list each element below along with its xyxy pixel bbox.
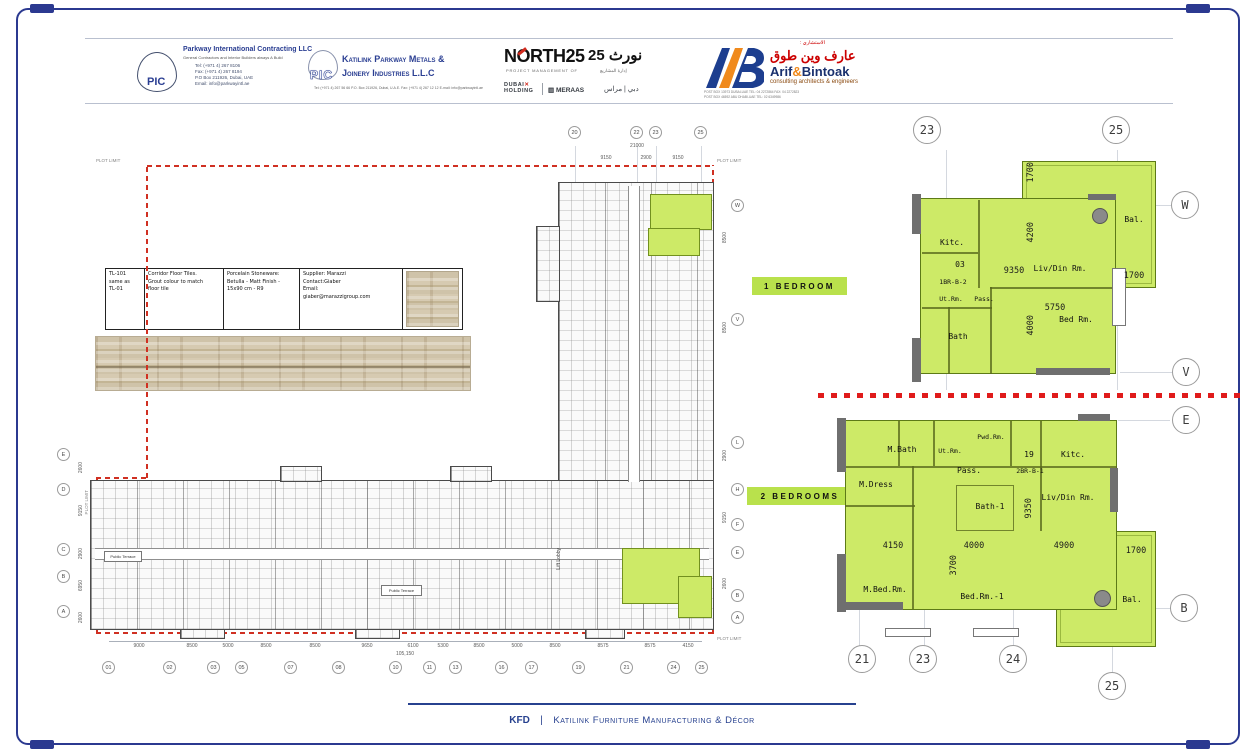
room-label: 03 — [955, 260, 965, 269]
wall-segment — [843, 602, 903, 610]
dim-label: 5300 — [437, 643, 448, 649]
room-label: Liv/Din Rm. — [1042, 493, 1095, 502]
dim-label: 4150 — [883, 541, 903, 551]
meraas-text: MERAAS — [556, 87, 584, 94]
plot-limit-line — [147, 165, 713, 167]
dim-label: 9150 — [672, 155, 683, 161]
grid-bubble: 23 — [913, 116, 941, 144]
dim-label: 2600 — [722, 578, 728, 589]
grid-line — [701, 146, 702, 182]
dim-label: 8500 — [722, 232, 728, 243]
dim-label: 21000 — [630, 143, 644, 149]
grid-bubble: C — [57, 543, 70, 556]
corner-mark — [30, 4, 54, 13]
building-tab — [280, 466, 322, 482]
dim-label: 2900 — [722, 450, 728, 461]
pic-contact-line: Tel: (+971 4) 267 8106 — [195, 63, 240, 68]
arif-address2: POST BOX 46592 ABU DHABI-UAE TEL: 02 634… — [704, 95, 781, 99]
partition-line — [922, 307, 992, 309]
dim-label: 9000 — [133, 643, 144, 649]
plot-limit-label: PLOT LIMIT — [717, 636, 741, 641]
arif-tagline: consulting architects & engineers — [770, 79, 858, 85]
chip-two-bedrooms: 2 BEDROOMS — [747, 487, 853, 505]
partition-line — [845, 505, 915, 507]
north25-logo-arabic: نورث 25 — [588, 46, 642, 64]
unit-highlight-2br — [678, 576, 712, 618]
north25-tagline-arabic: إدارة المشاريع — [600, 68, 627, 74]
door-sill — [973, 628, 1019, 637]
grid-line — [1118, 420, 1170, 421]
grid-bubble: A — [57, 605, 70, 618]
wood-sample-image — [406, 271, 459, 327]
grid-bubble: 25 — [1098, 672, 1126, 700]
dim-label: 8500 — [722, 322, 728, 333]
corner-mark — [1186, 740, 1210, 749]
partition-line — [922, 252, 978, 254]
dim-label: 8575 — [597, 643, 608, 649]
wall-segment — [912, 194, 921, 234]
building-tab — [355, 629, 400, 639]
grid-bubble: E — [57, 448, 70, 461]
room-label: M.Bed.Rm. — [863, 585, 906, 594]
grid-bubble: H — [731, 483, 744, 496]
plot-limit-line — [146, 165, 148, 478]
pic-abbr: PIC — [147, 76, 165, 88]
grid-line — [575, 146, 576, 182]
room-label: Ut.Rm. — [939, 295, 962, 303]
grid-bubble: 25 — [695, 661, 708, 674]
dim-total-label: 105,150 — [396, 651, 414, 657]
spec-desc-cell: Corridor Floor Tiles. Grout colour to ma… — [144, 268, 224, 330]
wall-segment — [1036, 368, 1110, 375]
building-tab — [585, 629, 625, 639]
pic-title: Parkway International Contracting LLC — [183, 46, 312, 53]
partition-line — [898, 421, 900, 466]
wall-segment — [837, 418, 846, 472]
partition-line — [933, 421, 935, 466]
dim-label: 9350 — [1004, 266, 1024, 276]
partition-line — [990, 287, 1116, 289]
grid-bubble: A — [731, 611, 744, 624]
footer-separator: | — [540, 715, 543, 726]
wall-segment — [1088, 194, 1116, 200]
grid-bubble: 24 — [999, 645, 1027, 673]
chip-one-bedroom: 1 BEDROOM — [752, 277, 847, 295]
wall-segment — [912, 338, 921, 382]
dim-label: 6100 — [407, 643, 418, 649]
dim-label: 4150 — [682, 643, 693, 649]
grid-bubble: F — [731, 518, 744, 531]
amp-text: & — [792, 64, 801, 79]
dubai-holding-logo: DUBAI✕ HOLDING — [504, 82, 534, 94]
unit-highlight-1br — [648, 228, 700, 256]
grid-line — [637, 146, 638, 182]
unit-highlight-1br — [650, 194, 712, 230]
grid-bubble: 03 — [207, 661, 220, 674]
building-tab — [180, 629, 225, 639]
grid-bubble: 10 — [389, 661, 402, 674]
company-logo-north25: NORTH25 PROJECT MANAGEMENT OF نورث 25 إد… — [500, 44, 690, 100]
plank-seam — [96, 366, 470, 368]
grid-line — [859, 609, 860, 649]
spec-code-cell: TL-101 same as TL-01 — [105, 268, 145, 330]
company-logo-katilink: PIC Katilink Parkway Metals & Joinery In… — [300, 48, 485, 100]
dim-label: 2900 — [640, 155, 651, 161]
public-terrace-label: Public Terrace — [104, 551, 142, 562]
grid-bubble: B — [57, 570, 70, 583]
corner-mark — [30, 740, 54, 749]
grid-bubble: W — [1171, 191, 1199, 219]
dim-label: 8500 — [186, 643, 197, 649]
grid-bubble: 25 — [1102, 116, 1130, 144]
dim-label: 9150 — [600, 155, 611, 161]
dim-label: 9650 — [361, 643, 372, 649]
door-sill — [885, 628, 931, 637]
arif-name-arabic: عارف وين طوق — [770, 48, 856, 64]
dim-label: 8500 — [549, 643, 560, 649]
partition-line — [978, 200, 980, 288]
brand-divider — [542, 83, 543, 95]
grid-bubble: E — [731, 546, 744, 559]
room-label: 19 — [1024, 450, 1034, 459]
grid-line — [656, 146, 657, 182]
room-label: Bed.Rm.-1 — [960, 592, 1003, 601]
grid-bubble: B — [1170, 594, 1198, 622]
grid-bubble: 23 — [909, 645, 937, 673]
katilink-contact: Tel: (+971 4) 267 56 66 P.O. Box 211926,… — [314, 86, 483, 90]
grid-bubble: 20 — [568, 126, 581, 139]
grid-bubble: V — [1172, 358, 1200, 386]
corner-mark — [1186, 4, 1210, 13]
grid-bubble: D — [57, 483, 70, 496]
pic-contact-line: Email: info@parkwayintl.ae — [195, 81, 249, 86]
partition-line — [1010, 421, 1012, 466]
public-terrace-label: Public Terrace — [381, 585, 422, 596]
holding-text: HOLDING — [504, 88, 534, 94]
wood-strip-image — [95, 336, 471, 391]
footer-title: KFD | Katilink Furniture Manufacturing &… — [408, 710, 856, 728]
katilink-line1: Katilink Parkway Metals & — [342, 54, 445, 64]
grid-bubble: 22 — [630, 126, 643, 139]
grid-bubble: 21 — [620, 661, 633, 674]
grid-bubble: 23 — [649, 126, 662, 139]
room-label: Kitc. — [940, 238, 964, 247]
dim-label: 8500 — [260, 643, 271, 649]
grid-bubble: 17 — [525, 661, 538, 674]
footer-kfd: KFD — [509, 715, 530, 726]
wall-segment — [1110, 468, 1118, 512]
dim-label: 2900 — [78, 548, 84, 559]
spec-material-cell: Porcelain Stoneware: Betulla - Matt Fini… — [223, 268, 300, 330]
room-label: 2BR-B-1 — [1016, 467, 1043, 475]
grid-bubble: 07 — [284, 661, 297, 674]
brands-arabic: دبي | مراس — [604, 85, 639, 93]
red-dotted-divider — [818, 393, 1245, 398]
dim-label: 6950 — [78, 580, 84, 591]
katilink-abbr: PIC — [310, 68, 333, 82]
dim-label: 1700 — [1124, 271, 1144, 281]
bintoak-text: Bintoak — [802, 64, 850, 79]
katilink-line2: Joinery Industries L.L.C — [342, 68, 434, 78]
grid-bubble: L — [731, 436, 744, 449]
room-label: Ut.Rm. — [938, 447, 961, 455]
pic-contact-line: P.O Box 211926, Dubai, UAE — [195, 75, 253, 80]
building-tab — [450, 466, 492, 482]
grid-bubble: 16 — [495, 661, 508, 674]
grid-bubble: 08 — [332, 661, 345, 674]
grid-bubble: 13 — [449, 661, 462, 674]
dim-label: 4200 — [1026, 222, 1036, 242]
arif-consultant-arabic: الاستشاري : — [800, 40, 825, 46]
room-label: Bed Rm. — [1059, 315, 1093, 324]
room-label: Bath — [948, 332, 967, 341]
dim-label: 5000 — [222, 643, 233, 649]
dim-label: 5750 — [1045, 303, 1065, 313]
grid-line — [1112, 647, 1113, 673]
arif-address1: POST BOX 13973 DUBAI-UAE TEL: 04 2272864… — [704, 90, 799, 94]
dim-label: 1700 — [1126, 546, 1146, 556]
lift-lobby-label: Lift Lobby — [556, 548, 562, 570]
grid-bubble: 24 — [667, 661, 680, 674]
ab-monogram-icon — [706, 48, 764, 88]
dim-label: 4000 — [964, 541, 984, 551]
dim-label: 2600 — [78, 462, 84, 473]
column-dot — [1094, 590, 1111, 607]
grid-bubble: 11 — [423, 661, 436, 674]
header-rule-bottom — [85, 103, 1173, 104]
header-rule-top — [85, 38, 1173, 39]
dim-label: 9350 — [1024, 498, 1034, 518]
north25-tagline: PROJECT MANAGEMENT OF — [506, 68, 578, 73]
dim-label: 2600 — [78, 612, 84, 623]
plot-limit-label: PLOT LIMIT — [84, 490, 89, 514]
arif-text: Arif — [770, 64, 792, 79]
room-label: M.Dress — [859, 480, 893, 489]
corridor — [95, 548, 709, 560]
grid-bubble: B — [731, 589, 744, 602]
plot-limit-line — [96, 477, 148, 479]
grid-line — [1120, 372, 1172, 373]
footer-rule — [408, 703, 856, 705]
dim-line — [109, 641, 702, 642]
room-label: Pass. — [957, 466, 981, 475]
grid-bubble: V — [731, 313, 744, 326]
room-label: Bal. — [1124, 215, 1143, 224]
room-label: M.Bath — [888, 445, 917, 454]
plot-limit-label: PLOT LIMIT — [717, 158, 741, 163]
dim-label: 3700 — [949, 555, 959, 575]
spec-supplier-cell: Supplier: Marazzi Contact:Giaber Email: … — [299, 268, 403, 330]
room-label: Liv/Din Rm. — [1034, 264, 1087, 273]
room-label: Pass. — [974, 295, 994, 303]
room-label: Kitc. — [1061, 450, 1085, 459]
room-label: 1BR-B-2 — [939, 278, 966, 286]
corridor — [628, 186, 640, 482]
partition-line — [912, 466, 914, 609]
room-label: Bal. — [1122, 595, 1141, 604]
column-dot — [1092, 208, 1108, 224]
room-label: Pwd.Rm. — [977, 433, 1004, 441]
grid-bubble: 02 — [163, 661, 176, 674]
dim-label: 4900 — [1054, 541, 1074, 551]
dim-label: 9150 — [722, 512, 728, 523]
partition-line — [1040, 421, 1042, 531]
dim-label: 9150 — [78, 505, 84, 516]
dim-label: 1700 — [1026, 162, 1036, 182]
dim-label: 8500 — [473, 643, 484, 649]
dim-label: 5000 — [511, 643, 522, 649]
arif-name: Arif&Bintoak — [770, 64, 849, 79]
dim-label: 8500 — [309, 643, 320, 649]
dim-label: 8575 — [644, 643, 655, 649]
grid-bubble: 25 — [694, 126, 707, 139]
pic-contact-line: Fax: (+971 4) 267 8194 — [195, 69, 242, 74]
grid-bubble: 01 — [102, 661, 115, 674]
building-annex — [536, 226, 560, 302]
grid-bubble: W — [731, 199, 744, 212]
pic-subtitle: General Contractors and Interior Builder… — [183, 55, 283, 60]
room-label: Bath-1 — [976, 502, 1005, 511]
plot-limit-label: PLOT LIMIT — [96, 158, 120, 163]
meraas-logo: ▥ MERAAS — [548, 86, 584, 94]
grid-bubble: E — [1172, 406, 1200, 434]
dim-label: 4000 — [1026, 315, 1036, 335]
company-logo-arif-bintoak: الاستشاري : عارف وين طوق Arif&Bintoak co… — [700, 40, 910, 102]
grid-bubble: 21 — [848, 645, 876, 673]
grid-bubble: 19 — [572, 661, 585, 674]
wall-segment — [1078, 414, 1110, 421]
footer-label: Katilink Furniture Manufacturing & Décor — [553, 715, 754, 726]
north25-logo: NORTH25 — [504, 46, 585, 67]
grid-bubble: 05 — [235, 661, 248, 674]
